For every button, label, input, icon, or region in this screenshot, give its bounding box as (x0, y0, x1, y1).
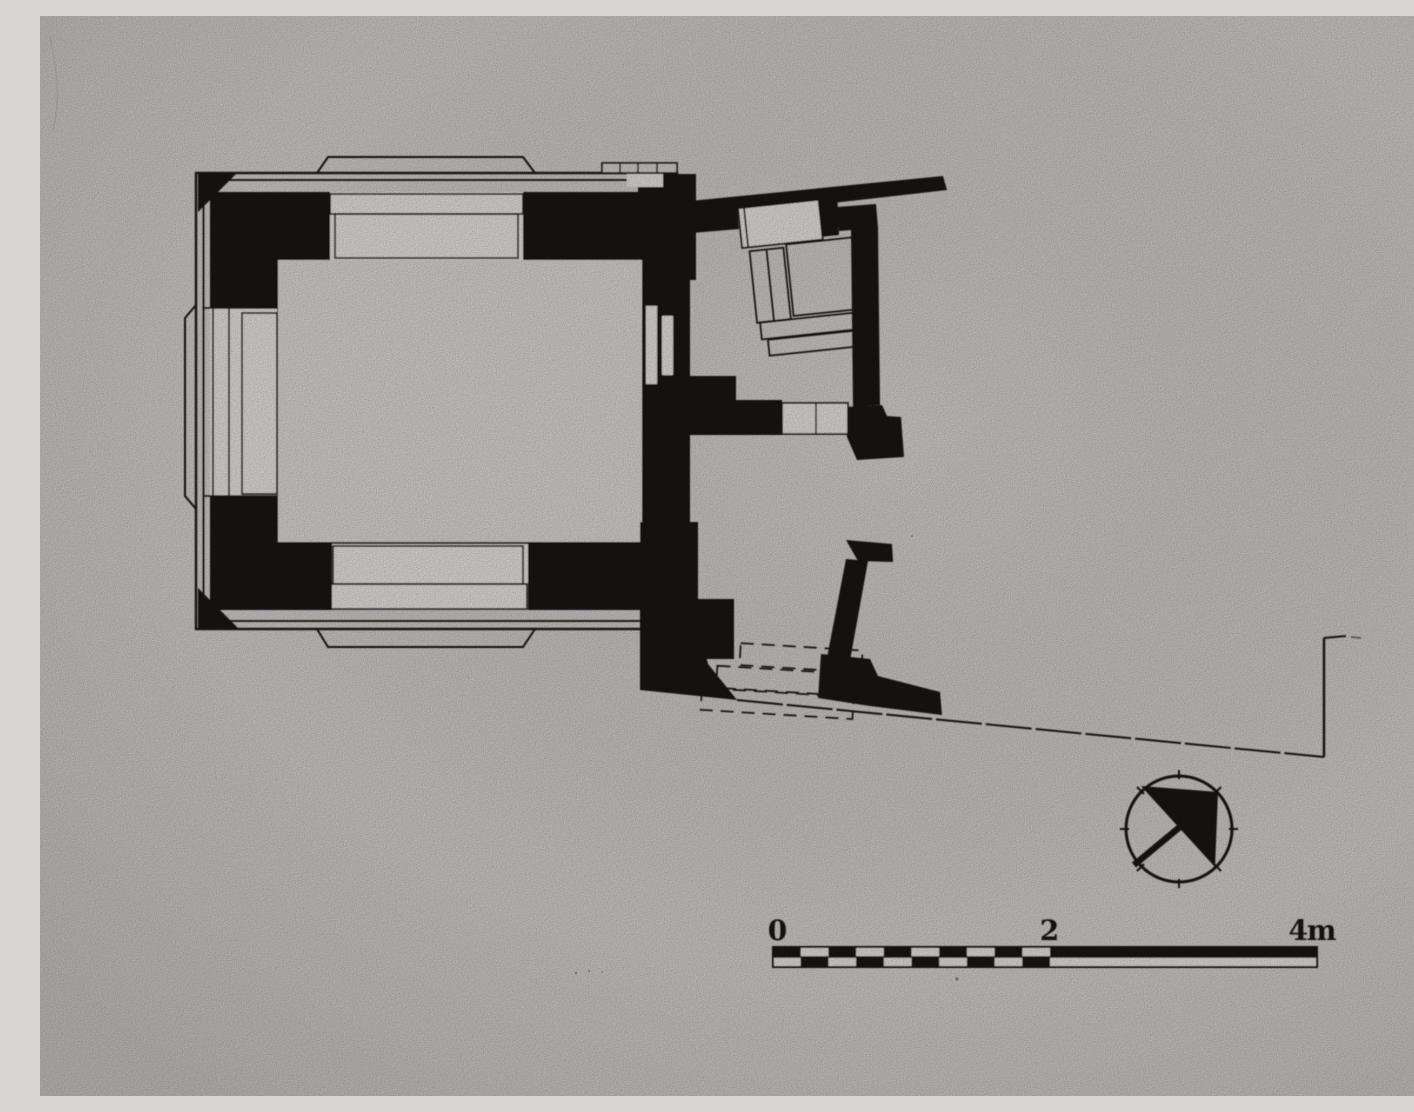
scan-grain (40, 16, 1414, 1096)
floor-plan-scan: 0 2 4m (40, 16, 1414, 1096)
plan-drawing: 0 2 4m (40, 16, 1414, 1096)
